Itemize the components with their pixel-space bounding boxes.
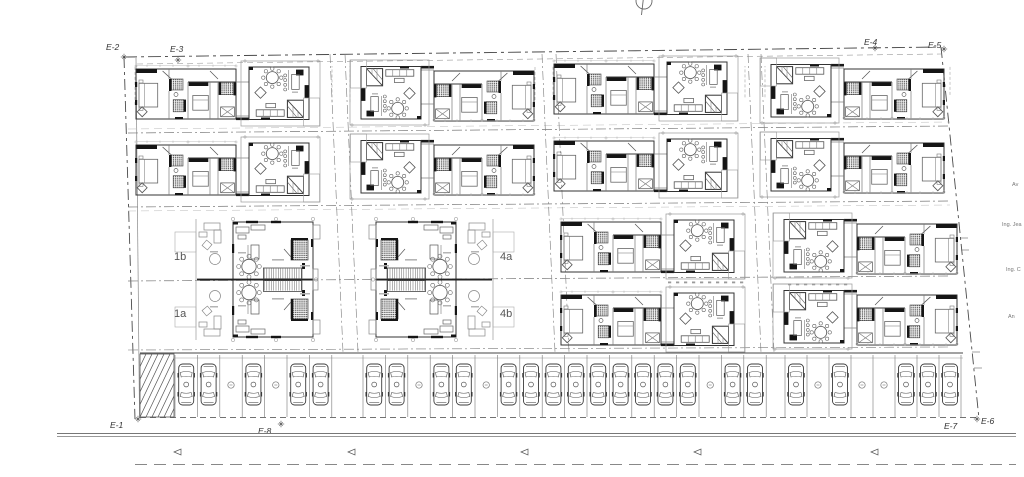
svg-text:1b: 1b bbox=[174, 251, 186, 263]
svg-text:4a: 4a bbox=[500, 251, 513, 263]
svg-text:4b: 4b bbox=[500, 308, 512, 320]
svg-text:E-7: E-7 bbox=[944, 421, 958, 431]
svg-text:E-3: E-3 bbox=[170, 44, 184, 54]
svg-text:E-1: E-1 bbox=[110, 420, 124, 430]
svg-text:E-2: E-2 bbox=[106, 42, 120, 52]
svg-text:Ing. Jea: Ing. Jea bbox=[1002, 222, 1023, 228]
svg-text:An: An bbox=[1008, 314, 1015, 320]
svg-text:E-4: E-4 bbox=[864, 37, 878, 47]
svg-text:E-8: E-8 bbox=[258, 426, 272, 436]
svg-text:Av: Av bbox=[1012, 182, 1019, 188]
svg-text:Ing. C: Ing. C bbox=[1006, 267, 1021, 273]
svg-text:1a: 1a bbox=[174, 308, 187, 320]
svg-text:E-6: E-6 bbox=[981, 416, 995, 426]
svg-text:E-5: E-5 bbox=[928, 40, 942, 50]
